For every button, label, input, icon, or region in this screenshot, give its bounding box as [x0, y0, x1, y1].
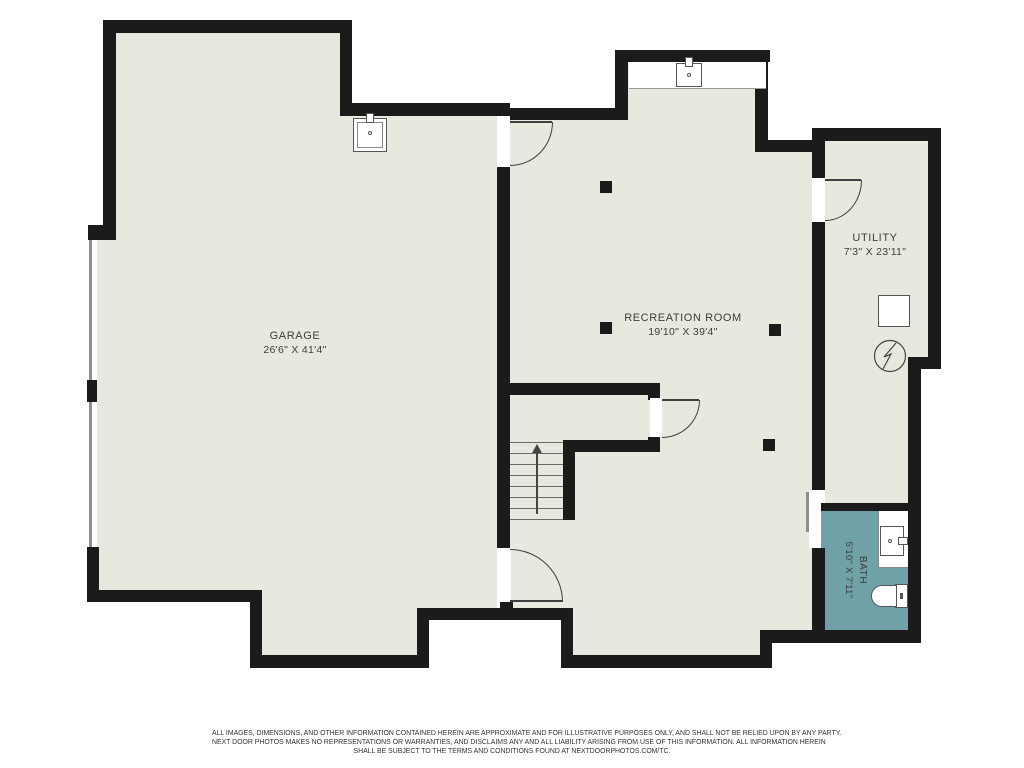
wall-garage-bottom	[250, 655, 427, 668]
laundry-sink-faucet	[685, 57, 693, 67]
wall-garage-left-upper	[103, 20, 116, 232]
door-opening	[497, 116, 510, 167]
electrical-panel-icon	[873, 339, 907, 373]
garage-label: GARAGE 26'6" X 41'4"	[215, 329, 375, 357]
toilet-flush-button	[900, 593, 903, 599]
room-name: RECREATION ROOM	[593, 311, 773, 325]
room-dimensions: 19'10" X 39'4"	[593, 325, 773, 339]
wall-window-mullion	[87, 380, 97, 402]
stairs-up-arrow-icon	[532, 444, 542, 453]
utility-label: UTILITY 7'3" X 23'11"	[815, 231, 935, 259]
garage-window	[86, 402, 97, 547]
wall-bath-right	[908, 357, 921, 643]
wall-utility-left	[812, 222, 825, 490]
bath-door-opening	[809, 490, 821, 548]
wall-garage-bottom-left	[87, 590, 262, 602]
room-name: GARAGE	[215, 329, 375, 343]
wall-stair-closet-top	[510, 383, 660, 395]
wall-recreation-bottom	[561, 655, 772, 668]
door-opening	[650, 398, 662, 437]
structural-post	[763, 439, 775, 451]
disclaimer-line: ALL IMAGES, DIMENSIONS, AND OTHER INFORM…	[212, 730, 812, 739]
structural-post	[600, 181, 612, 193]
furnace	[878, 295, 910, 327]
bath-label: BATH 5'10" X 7'11"	[841, 525, 869, 615]
wall-recreation-top-right	[755, 140, 812, 152]
disclaimer-line: SHALL BE SUBJECT TO THE TERMS AND CONDIT…	[212, 748, 812, 757]
recreation-room-floor	[565, 608, 772, 655]
garage-floor	[97, 240, 116, 592]
room-dimensions: 7'3" X 23'11"	[815, 245, 935, 259]
wall-stair-closet-bottom	[563, 440, 660, 452]
garage-sink-faucet	[366, 113, 374, 123]
disclaimer-line: NEXT DOOR PHOTOS MAKES NO REPRESENTATION…	[212, 739, 812, 748]
garage-sink-drain	[368, 131, 372, 135]
wall-garage-left-jog	[88, 225, 116, 240]
bath-sink-drain	[888, 539, 892, 543]
wall-bath-left	[812, 548, 825, 633]
recreation-room-floor	[772, 608, 815, 632]
door-opening	[812, 178, 825, 222]
toilet-bowl	[871, 585, 897, 607]
garage-window	[86, 240, 97, 380]
garage-sink-basin	[357, 122, 383, 148]
wall-central-stub	[500, 602, 513, 620]
bath-sink-faucet	[898, 537, 908, 545]
wall-stair-right	[563, 440, 575, 520]
room-dimensions: 5'10" X 7'11"	[841, 525, 855, 615]
recreation-room-floor	[768, 152, 815, 608]
room-dimensions: 26'6" X 41'4"	[215, 343, 375, 357]
utility-floor	[825, 360, 908, 511]
wall-utility-top	[812, 128, 941, 141]
recreation-room-label: RECREATION ROOM 19'10" X 39'4"	[593, 311, 773, 339]
room-name: BATH	[855, 525, 869, 615]
floor-plan: GARAGE 26'6" X 41'4" RECREATION ROOM 19'…	[0, 0, 1024, 768]
pocket-door	[806, 492, 809, 532]
garage-floor	[116, 33, 352, 116]
wall-garage-top-step	[340, 20, 352, 108]
window-pane	[89, 402, 92, 547]
laundry-sink-drain	[687, 73, 691, 77]
recreation-room-floor	[510, 116, 768, 608]
wall-bath-top	[818, 503, 908, 511]
wall-bath-bottom	[760, 630, 921, 643]
stairs-up-arrow-icon	[536, 452, 538, 514]
wall-utility-left-upper	[812, 128, 825, 178]
garage-floor	[262, 592, 427, 662]
disclaimer-text: ALL IMAGES, DIMENSIONS, AND OTHER INFORM…	[212, 730, 812, 757]
wall-central	[497, 167, 510, 548]
wall-mid-bottom	[417, 608, 573, 620]
wall-recreation-top-left	[497, 108, 628, 120]
room-name: UTILITY	[815, 231, 935, 245]
window-pane	[89, 240, 92, 380]
wall-garage-top	[103, 20, 352, 33]
